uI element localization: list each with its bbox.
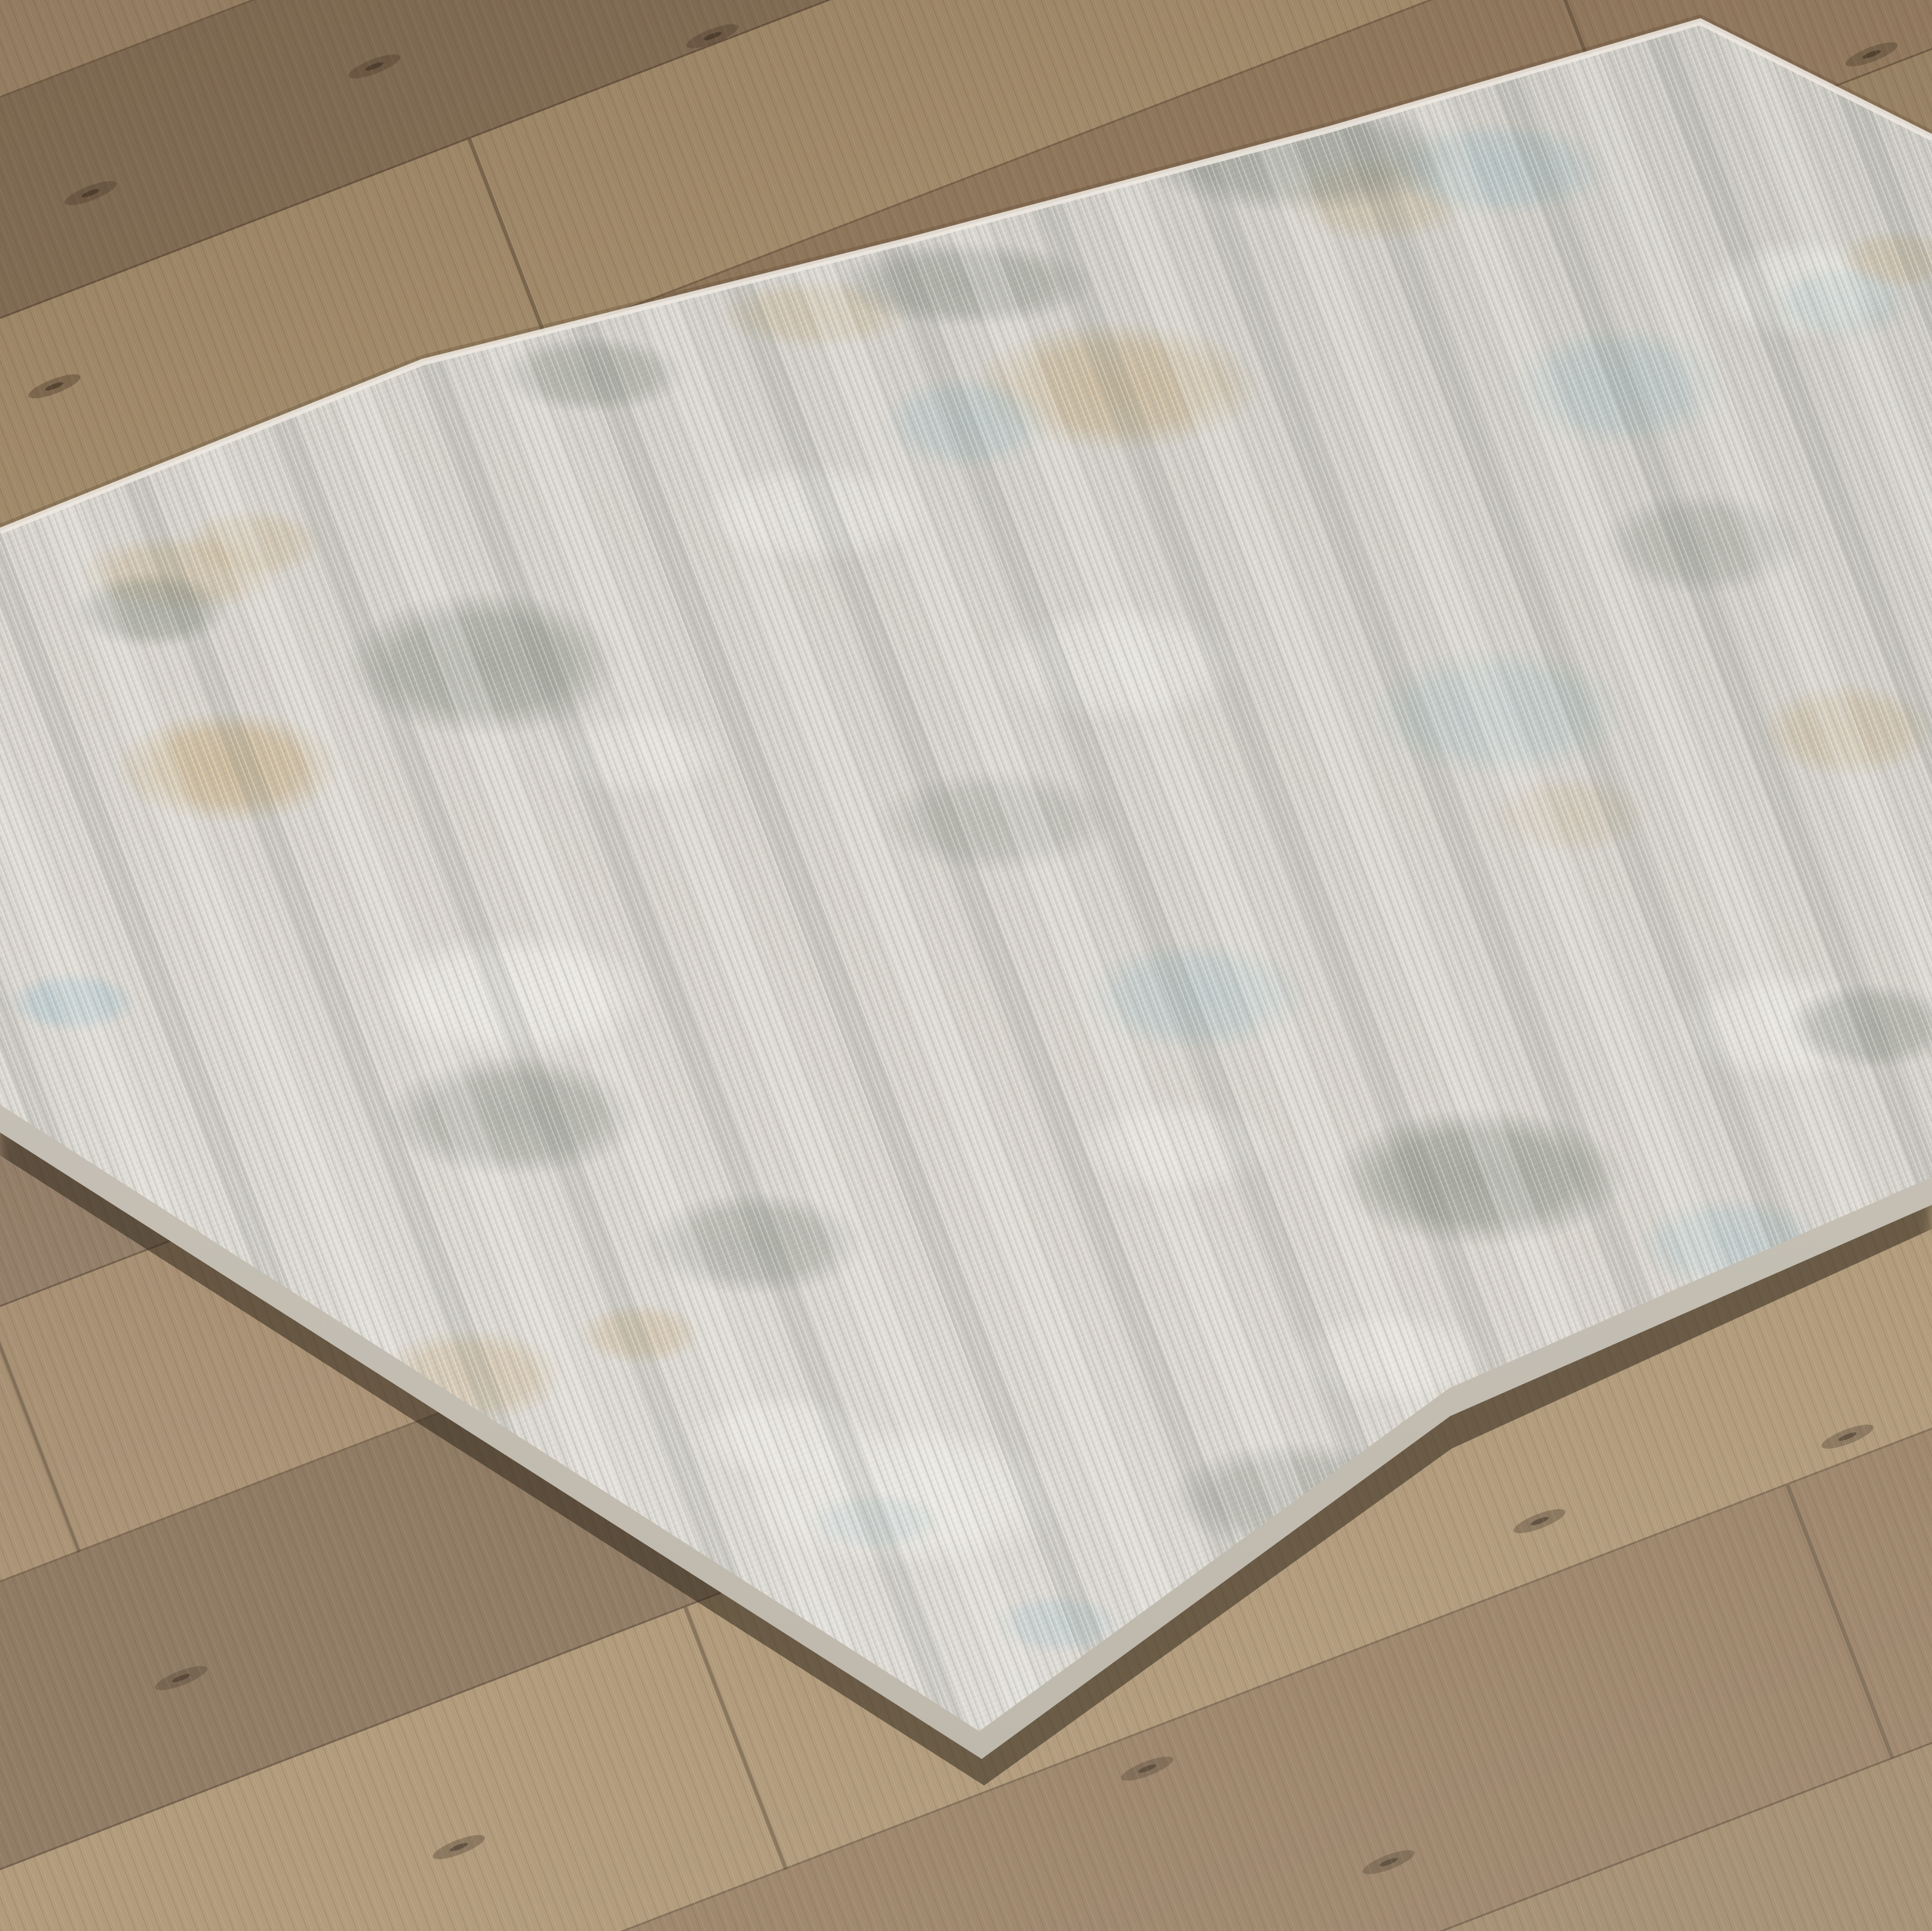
rug-far-edge-contact-shadow — [0, 16, 1932, 526]
photo-scene — [0, 0, 1932, 1931]
rug-edge-overlay — [0, 0, 1932, 1931]
rug-far-edge-highlight — [0, 22, 1932, 531]
